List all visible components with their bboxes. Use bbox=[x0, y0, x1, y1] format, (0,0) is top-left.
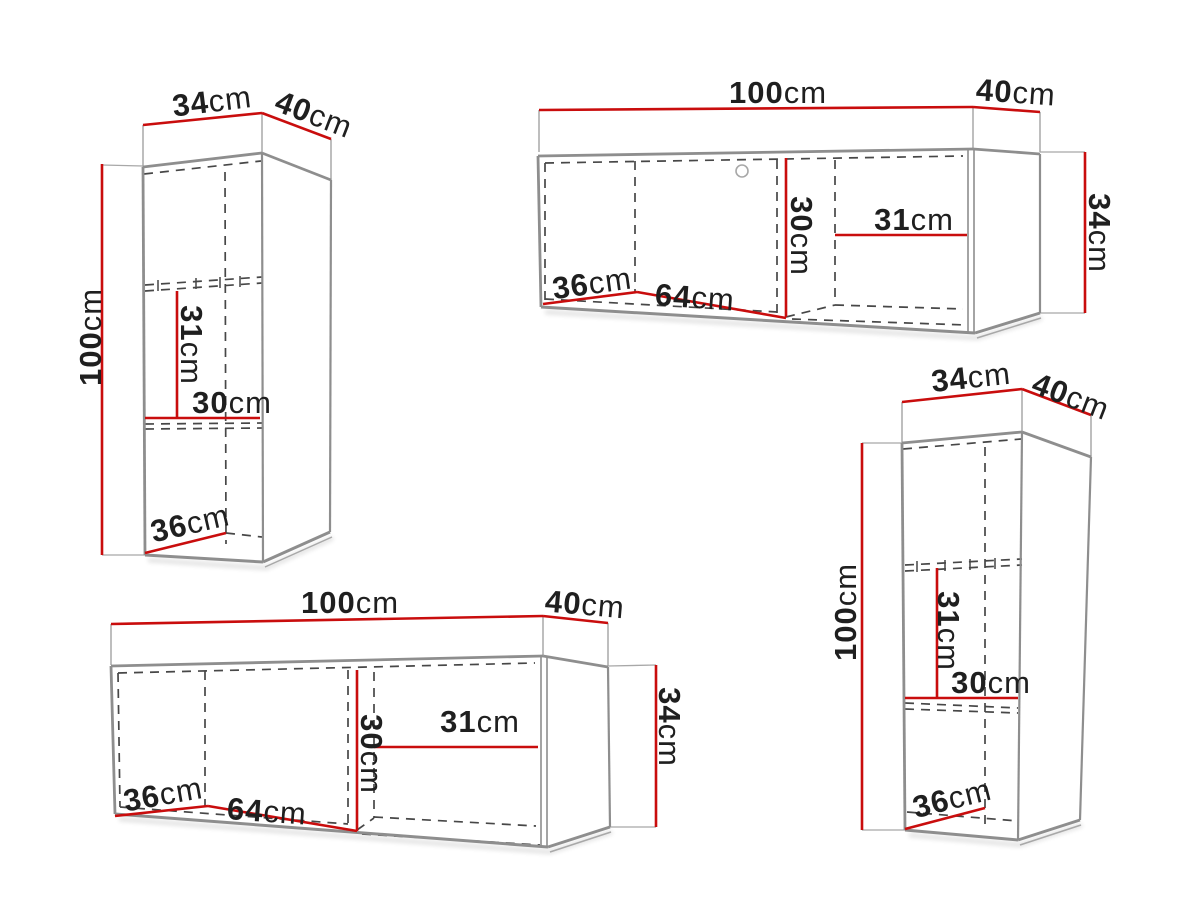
cabinet-bottom-right-drawing: 34cm 40cm 100cm 31cm 30cm 36cm bbox=[828, 356, 1115, 845]
height-label: 34cm bbox=[652, 687, 687, 767]
inner-width-label: 30cm bbox=[192, 385, 272, 420]
dimension-ticks bbox=[862, 443, 905, 830]
cabinet-outline bbox=[143, 153, 332, 567]
inner-height-label: 30cm bbox=[784, 196, 819, 276]
inner-middle-label: 64cm bbox=[226, 791, 308, 831]
depth-label: 40cm bbox=[975, 72, 1057, 112]
height-label: 34cm bbox=[1082, 193, 1117, 273]
dimension-ticks bbox=[608, 665, 656, 827]
shelf-tick-marks bbox=[158, 276, 240, 291]
top-panel-edges bbox=[539, 107, 1040, 152]
inner-right-label: 31cm bbox=[440, 704, 520, 739]
cabinet-top-right-drawing: 100cm 40cm 34cm 30cm 31cm 36cm 64cm bbox=[538, 72, 1117, 338]
furniture-dimension-diagram: 34cm 40cm 100cm 31cm 30cm 36cm bbox=[0, 0, 1200, 900]
dimension-lines bbox=[102, 113, 331, 555]
width-label: 100cm bbox=[301, 585, 399, 620]
depth-label: 40cm bbox=[544, 583, 627, 625]
cabinet-bottom-left-drawing: 100cm 40cm 34cm 30cm 31cm 36cm 64cm bbox=[111, 583, 687, 852]
mounting-hole bbox=[736, 165, 748, 177]
depth-label: 40cm bbox=[1027, 366, 1114, 427]
inner-depth-label: 36cm bbox=[550, 260, 634, 306]
diagram-canvas: 34cm 40cm 100cm 31cm 30cm 36cm bbox=[0, 0, 1200, 900]
dimension-lines bbox=[862, 389, 1091, 830]
width-label: 34cm bbox=[170, 79, 253, 123]
width-label: 100cm bbox=[729, 75, 827, 110]
dimension-ticks bbox=[1040, 152, 1085, 313]
hidden-lines bbox=[545, 156, 966, 325]
height-label: 100cm bbox=[828, 563, 863, 661]
inner-right-label: 31cm bbox=[874, 202, 954, 237]
inner-upper-label: 31cm bbox=[931, 591, 966, 671]
inner-height-label: 30cm bbox=[354, 714, 389, 794]
cabinet-top-left-drawing: 34cm 40cm 100cm 31cm 30cm 36cm bbox=[73, 79, 358, 568]
inner-upper-label: 31cm bbox=[174, 305, 209, 385]
inner-width-label: 30cm bbox=[951, 665, 1031, 700]
inner-depth-label: 36cm bbox=[121, 770, 206, 818]
inner-middle-label: 64cm bbox=[654, 277, 736, 317]
dimension-ticks bbox=[102, 165, 145, 555]
height-label: 100cm bbox=[73, 288, 108, 386]
depth-label: 40cm bbox=[270, 84, 357, 145]
cabinet-outline bbox=[902, 432, 1091, 845]
